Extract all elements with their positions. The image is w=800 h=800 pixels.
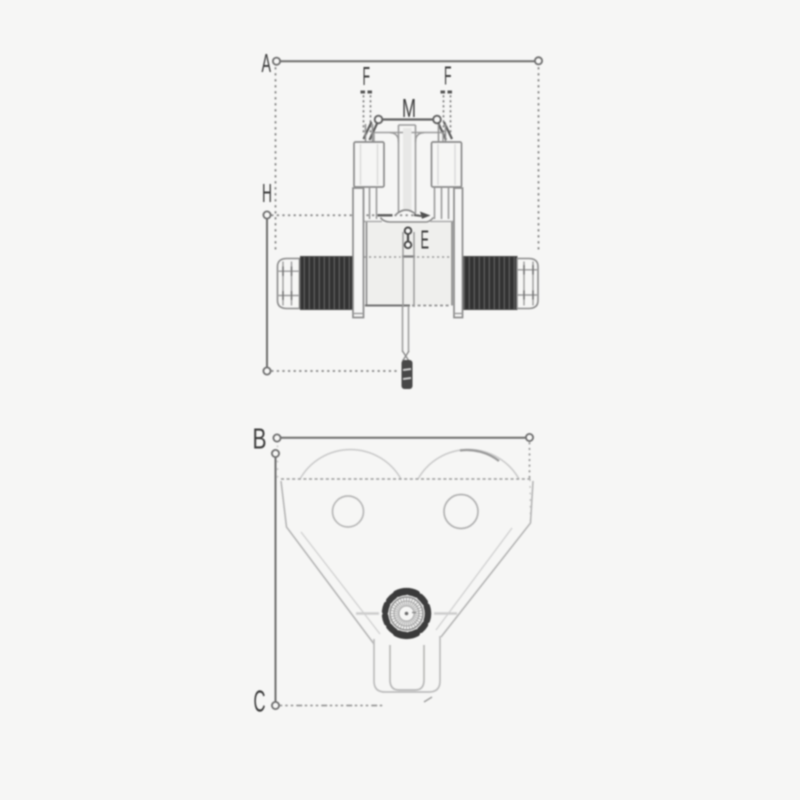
svg-text:F: F	[444, 61, 452, 91]
svg-text:F: F	[363, 61, 371, 91]
svg-text:B: B	[253, 424, 267, 456]
svg-text:H: H	[262, 178, 272, 208]
svg-text:A: A	[262, 48, 272, 78]
svg-text:C: C	[254, 684, 266, 719]
svg-text:E: E	[421, 225, 430, 255]
